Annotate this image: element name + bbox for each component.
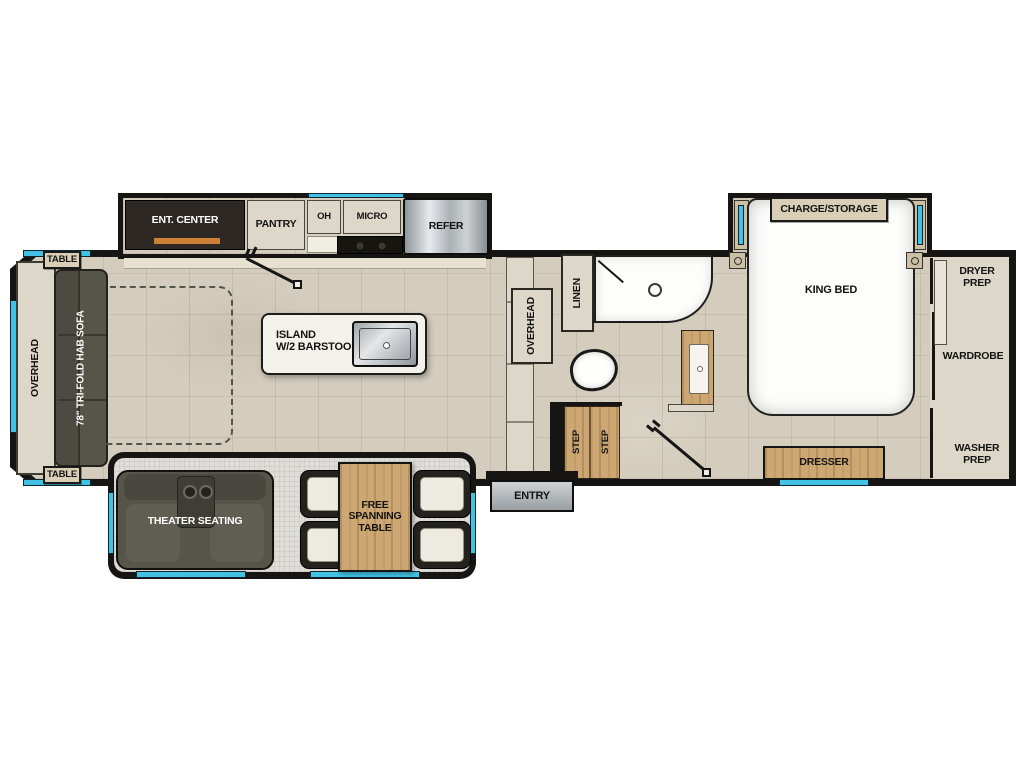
- cupholder-right: [199, 485, 213, 499]
- shower: [594, 255, 713, 323]
- cupholder-left: [183, 485, 197, 499]
- bed-hinge-left: [729, 252, 746, 269]
- step-right: STEP: [593, 407, 619, 478]
- entry-door: ENTRY: [490, 480, 574, 512]
- tv-shelf: [154, 238, 220, 244]
- king-bed: KING BED: [747, 198, 915, 416]
- kitchen-counter-section: [307, 236, 341, 253]
- bed-slide-window-right: [917, 205, 923, 245]
- oh-label: OH: [317, 212, 331, 222]
- linen-cabinet: LINEN: [561, 254, 594, 332]
- kitchen-slide-window: [308, 193, 404, 198]
- front-table-bottom-label: TABLE: [47, 470, 77, 480]
- dresser-label: DRESSER: [799, 457, 848, 469]
- shower-drain: [648, 283, 662, 297]
- bed-slide-window-left: [738, 205, 744, 245]
- entertainment-center-label: ENT. CENTER: [126, 207, 244, 235]
- dinette-window-left: [136, 571, 246, 578]
- refer-label: REFER: [429, 221, 464, 233]
- charge-storage-shelf: CHARGE/STORAGE: [770, 197, 888, 222]
- bedroom-door-hinge: [702, 468, 711, 477]
- shower-door-line: [598, 260, 624, 283]
- washer-prep-label: WASHER PREP: [948, 439, 1006, 471]
- front-table-top-label: TABLE: [47, 255, 77, 265]
- step-right-label: STEP: [601, 430, 611, 454]
- theater-seat-left: [126, 504, 180, 562]
- linen-label: LINEN: [572, 278, 584, 309]
- vanity-sink: [689, 344, 709, 394]
- dinette-chair-4: [413, 521, 471, 569]
- micro-label: MICRO: [357, 212, 388, 222]
- step-half-wall: [550, 402, 564, 479]
- charge-storage-label: CHARGE/STORAGE: [780, 204, 877, 216]
- step-left-label: STEP: [572, 430, 582, 454]
- dinette-chair-3: [413, 470, 471, 518]
- kitchen-counter-lip: [124, 258, 486, 269]
- island-sink: [352, 321, 418, 367]
- dryer-cabinet-panel: [934, 260, 947, 345]
- front-table-bottom: TABLE: [43, 466, 81, 484]
- dinette-chair-4-cushion: [420, 528, 464, 562]
- closet-wall-seg-3: [930, 408, 933, 478]
- bed-hinge-right-pin: [911, 257, 919, 265]
- microwave-cabinet: MICRO: [343, 200, 401, 234]
- refrigerator: REFER: [403, 198, 489, 255]
- sofa-label: 78" TRI-FOLD HAB SOFA: [58, 272, 104, 464]
- galley-cabinet-divider-3: [507, 421, 533, 423]
- theater-seating: THEATER SEATING: [116, 470, 274, 570]
- kitchen-door-hinge: [293, 280, 302, 289]
- king-bed-label: KING BED: [749, 282, 913, 298]
- bath-vanity: [681, 330, 714, 408]
- vanity-faucet-dot: [697, 366, 703, 372]
- closet-wall-seg-1: [930, 258, 933, 304]
- bed-hinge-right: [906, 252, 923, 269]
- slide-travel-dashed-outline: [100, 286, 233, 445]
- theater-seat-right: [210, 504, 264, 562]
- bed-hinge-left-pin: [734, 257, 742, 265]
- kitchen-island: ISLAND W/2 BARSTOOLS: [261, 313, 427, 375]
- vanity-ledge: [668, 404, 714, 412]
- theater-seating-label: THEATER SEATING: [118, 514, 272, 530]
- overhead-cabinet-kitchen: OH: [307, 200, 341, 234]
- wardrobe-label: WARDROBE: [938, 349, 1008, 365]
- floorplan-canvas: OVERHEAD TABLE 78" TRI-FOLD HAB SOFA TAB…: [0, 0, 1024, 768]
- front-overhead-label: OVERHEAD: [16, 261, 56, 475]
- galley-overhead-cabinet: OVERHEAD: [511, 288, 553, 364]
- entry-label: ENTRY: [514, 490, 550, 502]
- dinette-chair-3-cushion: [420, 477, 464, 511]
- dinette-window-right: [310, 571, 420, 578]
- entry-steps: STEP STEP: [564, 406, 620, 479]
- dresser: DRESSER: [763, 446, 885, 480]
- free-spanning-table: FREE SPANNING TABLE: [338, 462, 412, 572]
- island-sink-drain: [383, 342, 390, 349]
- dryer-prep-label: DRYER PREP: [948, 262, 1006, 294]
- front-table-top: TABLE: [43, 251, 81, 269]
- range-cooktop: [337, 236, 403, 254]
- pantry-cabinet: PANTRY: [247, 200, 305, 250]
- step-left: STEP: [565, 407, 591, 478]
- rear-closet: DRYER PREP WARDROBE WASHER PREP: [930, 257, 1009, 479]
- free-spanning-table-label: FREE SPANNING TABLE: [345, 500, 405, 535]
- pantry-label: PANTRY: [256, 219, 297, 231]
- galley-overhead-label: OVERHEAD: [526, 297, 538, 355]
- dinette-window-side-left: [108, 492, 114, 554]
- entertainment-center: ENT. CENTER: [125, 200, 245, 250]
